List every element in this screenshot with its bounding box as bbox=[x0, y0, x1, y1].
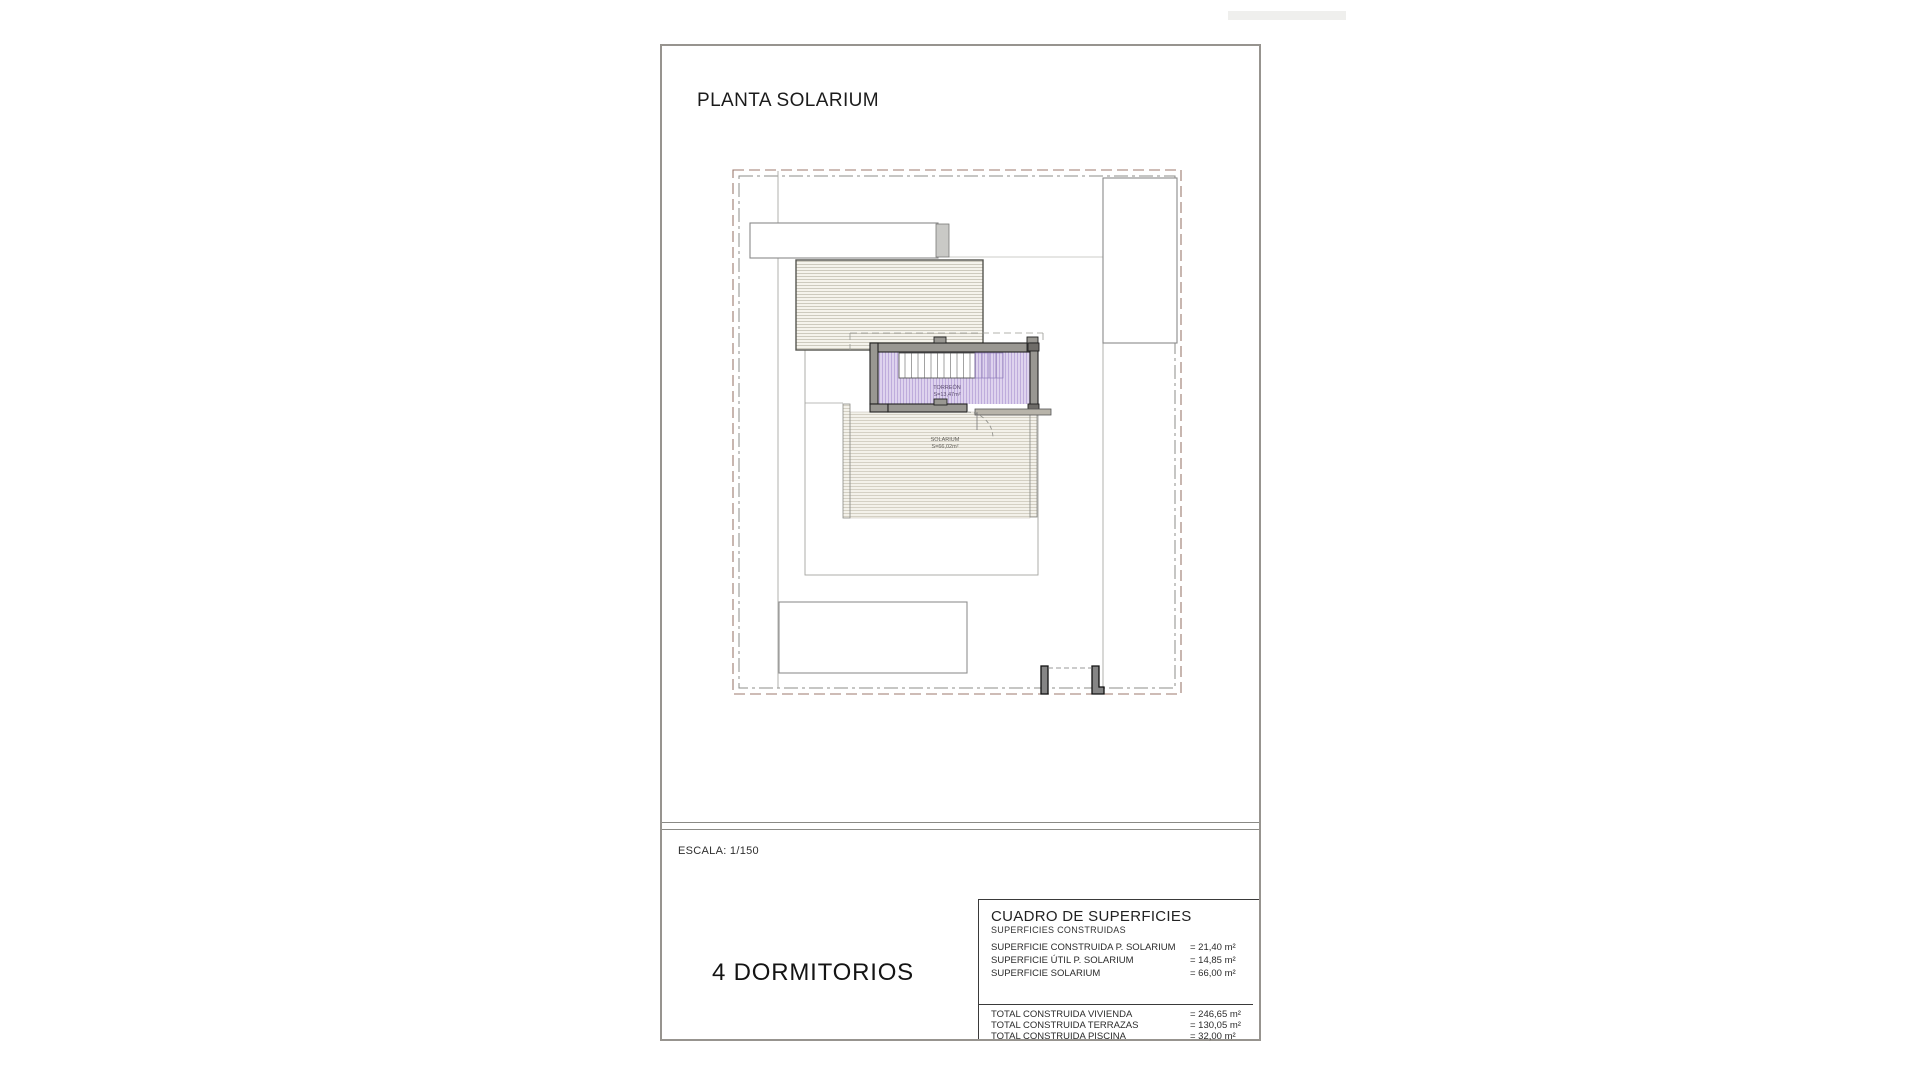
plan-sheet: PLANTA SOLARIUM bbox=[660, 44, 1261, 1041]
drawing-canvas: PLANTA SOLARIUM bbox=[0, 0, 1920, 1080]
table-row: SUPERFICIE CONSTRUIDA P. SOLARIUM= 21,40… bbox=[991, 941, 1253, 954]
table-row: SUPERFICIE SOLARIUM= 66,00 m² bbox=[991, 967, 1253, 980]
surface-table-title: CUADRO DE SUPERFICIES bbox=[991, 908, 1253, 925]
bedrooms-label: 4 DORMITORIOS bbox=[712, 959, 914, 987]
row-value: = 130,05 m² bbox=[1190, 1020, 1241, 1031]
torreon-area-label: S=13,47m² bbox=[933, 392, 960, 398]
row-value: = 32,00 m² bbox=[1190, 1031, 1236, 1042]
row-value: = 66,00 m² bbox=[1190, 968, 1236, 979]
row-label: TOTAL CONSTRUIDA VIVIENDA bbox=[991, 1009, 1190, 1020]
floor-plan-svg: TORREÓN S=13,47m² SOLARIUM S=66,02m² bbox=[662, 46, 1259, 822]
entrance-gate bbox=[1041, 666, 1104, 694]
torreon-label: TORREÓN bbox=[933, 384, 960, 391]
row-label: SUPERFICIE ÚTIL P. SOLARIUM bbox=[991, 954, 1190, 967]
totals-rows: TOTAL CONSTRUIDA VIVIENDA= 246,65 m² TOT… bbox=[991, 1009, 1253, 1042]
row-value: = 21,40 m² bbox=[1190, 942, 1236, 953]
row-value: = 246,65 m² bbox=[1190, 1009, 1241, 1020]
titleblock-divider bbox=[662, 822, 1259, 830]
entry-step bbox=[975, 409, 1051, 415]
solarium-area-label: S=66,02m² bbox=[931, 444, 958, 450]
scale-label: ESCALA: 1/150 bbox=[678, 845, 759, 857]
surface-rows: SUPERFICIE CONSTRUIDA P. SOLARIUM= 21,40… bbox=[991, 941, 1253, 980]
surface-table-subtitle: SUPERFICIES CONSTRUIDAS bbox=[991, 925, 1253, 935]
surface-table: CUADRO DE SUPERFICIES SUPERFICIES CONSTR… bbox=[978, 899, 1259, 1039]
table-row: TOTAL CONSTRUIDA TERRAZAS= 130,05 m² bbox=[991, 1020, 1253, 1031]
row-label: TOTAL CONSTRUIDA PISCINA bbox=[991, 1031, 1190, 1042]
lower-terrace-block bbox=[779, 602, 967, 673]
row-label: TOTAL CONSTRUIDA TERRAZAS bbox=[991, 1020, 1190, 1031]
side-terrace-block bbox=[1103, 178, 1177, 343]
totals-separator bbox=[979, 1004, 1253, 1005]
table-row: SUPERFICIE ÚTIL P. SOLARIUM= 14,85 m² bbox=[991, 954, 1253, 967]
row-value: = 14,85 m² bbox=[1190, 955, 1236, 966]
row-label: SUPERFICIE SOLARIUM bbox=[991, 967, 1190, 980]
table-row: TOTAL CONSTRUIDA PISCINA= 32,00 m² bbox=[991, 1031, 1253, 1042]
solarium-label: SOLARIUM bbox=[931, 437, 960, 443]
scan-artifact bbox=[1228, 11, 1346, 20]
upper-terrace-band bbox=[750, 223, 949, 258]
row-label: SUPERFICIE CONSTRUIDA P. SOLARIUM bbox=[991, 941, 1190, 954]
table-row: TOTAL CONSTRUIDA VIVIENDA= 246,65 m² bbox=[991, 1009, 1253, 1020]
roof-hatch bbox=[796, 260, 983, 350]
